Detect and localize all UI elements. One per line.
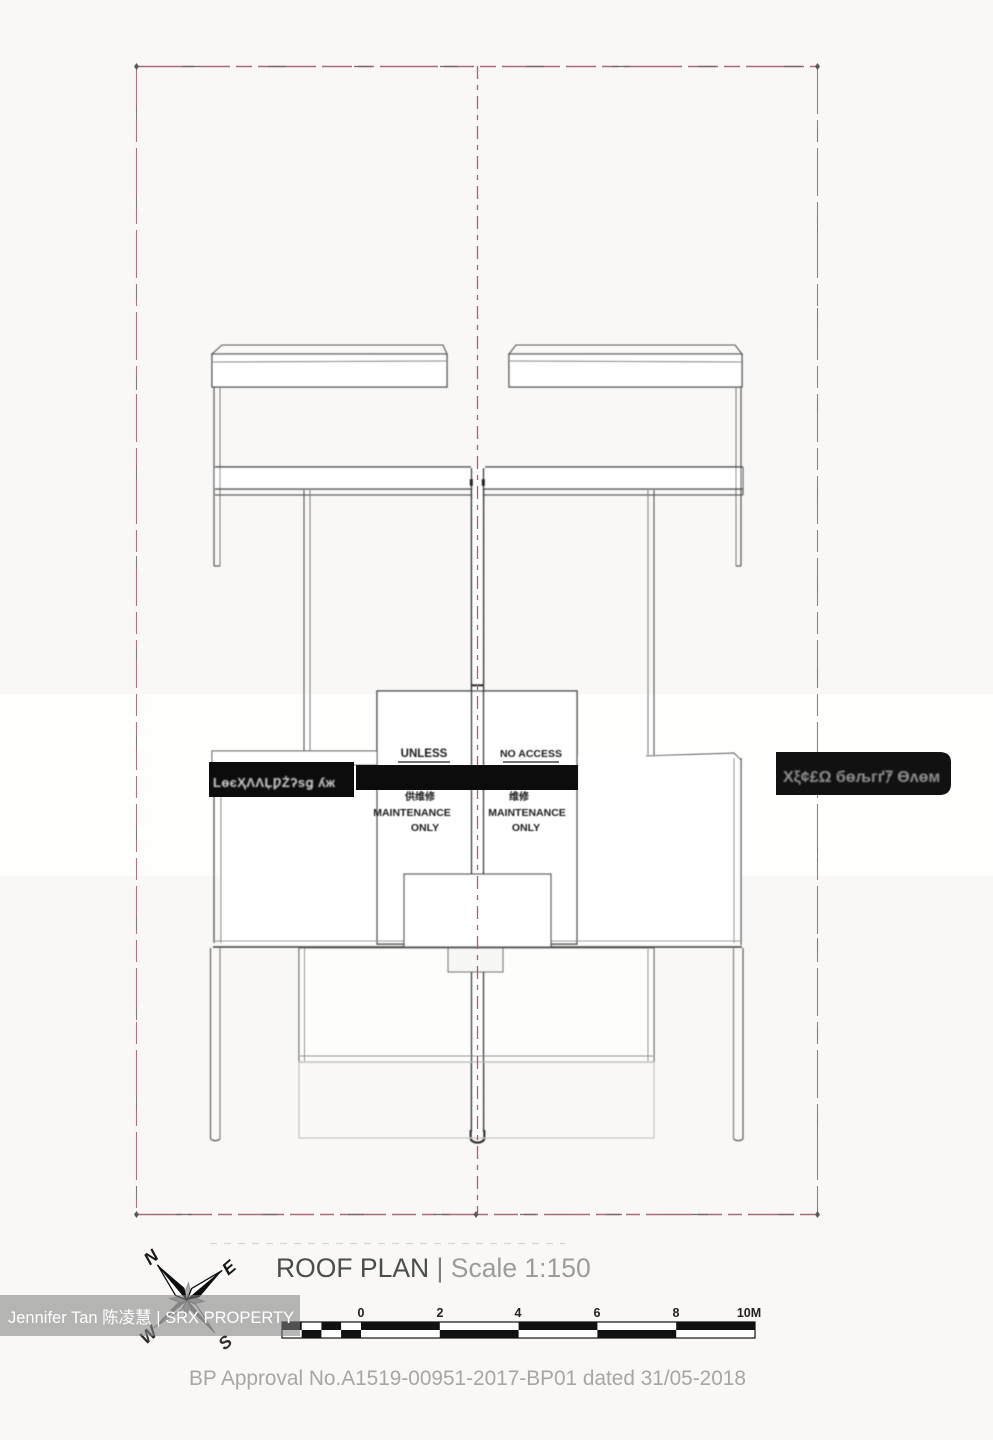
svg-text:8: 8 (673, 1306, 680, 1320)
svg-text:MAINTENANCE: MAINTENANCE (373, 807, 451, 819)
svg-text:4: 4 (515, 1306, 522, 1320)
svg-text:LөєҲΛΛĻǷŻʔѕց ʎж: LөєҲΛΛĻǷŻʔѕց ʎж (213, 775, 336, 791)
svg-text:0: 0 (358, 1306, 365, 1320)
svg-text:ROOF PLAN | Scale 1:150: ROOF PLAN | Scale 1:150 (276, 1253, 591, 1283)
svg-text:ONLY: ONLY (512, 822, 540, 834)
svg-text:UNLESS: UNLESS (401, 748, 448, 760)
svg-text:维修: 维修 (509, 790, 530, 803)
svg-text:2: 2 (437, 1306, 444, 1320)
svg-text:Xξ¢£Ω бөљгґｱ Өʌөм: Xξ¢£Ω бөљгґｱ Өʌөм (783, 769, 940, 786)
svg-text:NO ACCESS: NO ACCESS (500, 748, 562, 760)
svg-text:MAINTENANCE: MAINTENANCE (488, 807, 566, 819)
svg-text:供维修: 供维修 (404, 790, 436, 803)
svg-text:6: 6 (594, 1306, 601, 1320)
svg-text:Jennifer Tan 陈凌慧 | SRX PROPERT: Jennifer Tan 陈凌慧 | SRX PROPERTY (8, 1308, 294, 1327)
svg-text:ONLY: ONLY (411, 822, 439, 834)
svg-text:10M: 10M (737, 1306, 761, 1320)
svg-text:BP Approval No.A1519-00951-201: BP Approval No.A1519-00951-2017-BP01 dat… (189, 1367, 746, 1390)
